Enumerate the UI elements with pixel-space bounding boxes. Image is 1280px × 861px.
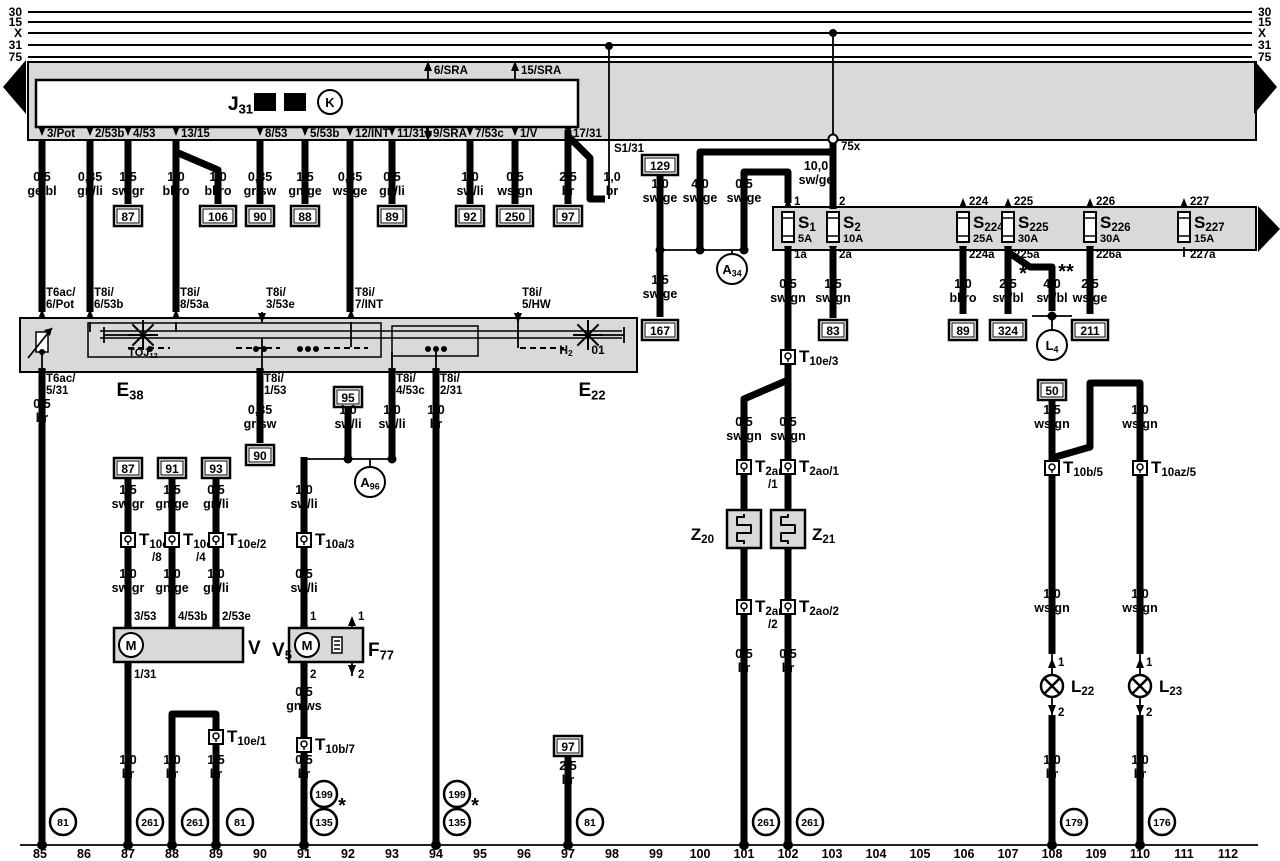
relay-slot-number: 5 <box>262 96 269 110</box>
terminal-arrow-icon <box>348 665 356 675</box>
terminal-label: T8i/5/HW <box>522 287 551 311</box>
ground-ref-number: 261 <box>141 817 159 829</box>
wire-spec-label: 2,5ws/ge <box>1072 277 1108 305</box>
terminal-label: 2 <box>358 669 364 681</box>
junction-dot <box>740 246 749 255</box>
terminal-label: 225a <box>1014 249 1040 261</box>
ground-ref-number: 179 <box>1065 817 1083 829</box>
track-number: 100 <box>690 847 711 861</box>
track-number: 104 <box>866 847 887 861</box>
wire-spec-label: 1,0sw/li <box>378 403 405 431</box>
terminal-label: 15/SRA <box>521 65 561 77</box>
terminal-label: 2 <box>1058 707 1064 719</box>
ground-ref-number: 199 <box>315 789 333 801</box>
terminal-arrow-icon <box>959 198 967 208</box>
track-number: 96 <box>517 847 531 861</box>
track-ref-number: 250 <box>505 210 525 224</box>
fuse-icon <box>957 212 969 242</box>
terminal-label: 13/15 <box>181 128 210 140</box>
wiring-diagram-page: 30301515XX31317575J3156KS15AS210AS22425A… <box>0 0 1280 861</box>
terminal-label: 5/53b <box>310 128 339 140</box>
terminal-label: T8i/4/53c <box>396 373 425 397</box>
ground-ref-number: 135 <box>448 817 466 829</box>
track-number: 107 <box>998 847 1019 861</box>
ground-ref-number: 81 <box>584 817 596 829</box>
fuse-icon <box>1084 212 1096 242</box>
wire-spec-label: 1,5sw/gr <box>112 170 145 198</box>
track-ref-number: 89 <box>956 324 970 338</box>
track-ref-number: 97 <box>561 210 575 224</box>
terminal-arrow-icon <box>1004 198 1012 208</box>
track-ref-number: 91 <box>165 462 179 476</box>
wire-spec-label: 1,0gn/li <box>203 567 229 595</box>
wire-spec-label: 0,5br <box>735 647 752 675</box>
track-number: 97 <box>561 847 575 861</box>
terminal-label: 224 <box>969 196 989 208</box>
continuation-arrow-icon <box>1258 206 1280 252</box>
component-label: Z21 <box>812 525 836 546</box>
terminal-label: 2 <box>1146 707 1152 719</box>
terminal-label: 1a <box>794 249 807 261</box>
wire-spec-label: 2,5br <box>559 759 576 787</box>
track-number: 93 <box>385 847 399 861</box>
track-ref-number: 211 <box>1080 324 1100 338</box>
connector-label: T10e/1 <box>227 727 267 748</box>
terminal-label: 2/53b <box>95 128 124 140</box>
track-number: 111 <box>1174 847 1194 861</box>
junction-dot <box>441 346 447 352</box>
terminal-label: 7/53c <box>475 128 504 140</box>
continuation-arrow-icon <box>1254 60 1277 114</box>
wire-spec-label: 1,0br <box>163 753 180 781</box>
wire-spec-label: 1,0br <box>119 753 136 781</box>
junction-dot <box>388 455 397 464</box>
terminal-label: 75x <box>841 141 861 153</box>
wire-spec-label: 1,5sw/gr <box>112 483 145 511</box>
terminal-label: 12/INT <box>355 128 390 140</box>
track-ref-number: 167 <box>650 324 670 338</box>
junction-dot <box>605 42 613 50</box>
relay-j31-box <box>36 80 578 127</box>
wire-spec-label: 0,5br <box>295 753 312 781</box>
terminal-arrow-icon <box>1086 198 1094 208</box>
wire-spec-label: 0,35gn/li <box>77 170 103 198</box>
relay-slot-number: 6 <box>292 96 299 110</box>
connector-label: T10az/5 <box>1151 458 1197 479</box>
junction-dot <box>829 29 837 37</box>
component-label: E38 <box>116 380 143 402</box>
terminal-label: 226a <box>1096 249 1122 261</box>
fuse-icon <box>1178 212 1190 242</box>
track-ref-number: 90 <box>253 449 267 463</box>
terminal-arrow-icon <box>1136 705 1144 715</box>
track-number: 108 <box>1042 847 1063 861</box>
track-ref-number: 89 <box>385 210 399 224</box>
track-number: 105 <box>910 847 931 861</box>
connector-label: T2ao/1 <box>799 457 839 478</box>
wire-spec-label: 0,5gn/li <box>203 483 229 511</box>
track-ref-number: 106 <box>208 210 228 224</box>
track-ref-number: 324 <box>998 324 1018 338</box>
wire-spec-label: 1,0sw/li <box>290 483 317 511</box>
component-label: Z20 <box>691 525 714 546</box>
wiring-diagram-canvas: 30301515XX31317575J3156KS15AS210AS22425A… <box>0 0 1280 861</box>
junction-dot <box>297 346 303 352</box>
terminal-label: T8i/1/53 <box>264 373 286 397</box>
component-label: V <box>248 638 261 659</box>
connector-label: T10b/5 <box>1063 458 1103 479</box>
fuse-rating: 25A <box>973 233 993 245</box>
junction-dot <box>344 455 353 464</box>
component-label: F77 <box>368 640 394 662</box>
terminal-label: 1 <box>358 611 365 623</box>
wire-spec-label: 1,0ws/gn <box>1033 587 1069 615</box>
junction-dot <box>433 346 439 352</box>
connector-label: T10a/3 <box>315 530 354 551</box>
ground-ref-number: 261 <box>186 817 204 829</box>
track-number: 92 <box>341 847 355 861</box>
terminal-label: T8i/7/INT <box>355 287 383 311</box>
track-number: 99 <box>649 847 663 861</box>
wire <box>744 380 788 508</box>
wire-spec-label: 1,0bl/ro <box>204 170 231 198</box>
track-number: 106 <box>954 847 975 861</box>
wire-spec-label: 1,0ws/gn <box>1121 403 1157 431</box>
wire-spec-label: 1,0br <box>603 170 620 198</box>
terminal-label: 17/31 <box>573 128 602 140</box>
track-number: 110 <box>1130 847 1150 861</box>
fuse-icon <box>827 212 839 242</box>
ground-ref-number: 199 <box>448 789 466 801</box>
component-label: L22 <box>1071 677 1094 698</box>
wire-spec-label: 0,5sw/ge <box>727 177 762 205</box>
track-number: 103 <box>822 847 843 861</box>
terminal-label: 1 <box>794 196 801 208</box>
terminal-label: 1 <box>1146 657 1153 669</box>
wire-spec-label: 0,5gn/ws <box>286 685 321 713</box>
wire-spec-label: 0,5sw/gn <box>770 277 805 305</box>
terminal-label: 225 <box>1014 196 1034 208</box>
wire-spec-label: 1,0bl/ro <box>949 277 976 305</box>
terminal-label: T6ac/5/31 <box>46 373 76 397</box>
wire-spec-label: 0,5sw/gn <box>726 415 761 443</box>
terminal-label: S1/31 <box>614 143 645 155</box>
wire-spec-label: 0,5sw/gn <box>770 415 805 443</box>
terminal-arrow-icon <box>1048 658 1056 668</box>
wire-spec-label: 0,35ws/ge <box>332 170 368 198</box>
wire-spec-label: 1,0gn/ge <box>155 567 188 595</box>
track-number: 94 <box>429 847 443 861</box>
wire-spec-label: 1,0bl/ro <box>162 170 189 198</box>
track-number: 88 <box>165 847 179 861</box>
wire-spec-label: 1,0sw/gr <box>112 567 145 595</box>
terminal-arrow-icon <box>1136 658 1144 668</box>
terminal-label: 1 <box>1058 657 1065 669</box>
fuse-rating: 10A <box>843 233 863 245</box>
connector-label: T10e/2 <box>227 530 266 551</box>
terminal-arrow-icon <box>348 616 356 626</box>
track-ref-number: 87 <box>121 210 135 224</box>
track-number: 98 <box>605 847 619 861</box>
terminal-label: T8i/8/53a <box>180 287 209 311</box>
terminal-label: 2a <box>839 249 852 261</box>
wire-spec-label: 1,0br <box>1043 753 1060 781</box>
ground-ref-number: 81 <box>234 817 246 829</box>
track-number: 102 <box>778 847 799 861</box>
junction-dot <box>305 346 311 352</box>
continuation-arrow-icon <box>3 60 26 114</box>
wire-spec-label: 1,0sw/li <box>456 170 483 198</box>
junction-dot <box>253 346 259 352</box>
track-number: 101 <box>734 847 755 861</box>
terminal-label: 227a <box>1190 249 1216 261</box>
track-number: 109 <box>1086 847 1107 861</box>
track-ref-number: 93 <box>209 462 223 476</box>
component-label: E22 <box>578 380 605 402</box>
junction-dot <box>261 346 267 352</box>
terminal-label: 2 <box>839 196 845 208</box>
wire-spec-label: 1,0br <box>427 403 444 431</box>
ground-ref-number: 81 <box>57 817 69 829</box>
wire-spec-label: 1,5gn/ge <box>288 170 321 198</box>
terminal-label: 1 <box>310 611 317 623</box>
junction-dot <box>696 246 705 255</box>
wire-spec-label: 0,5sw/li <box>290 567 317 595</box>
wire-spec-label: 0,35gr/sw <box>244 170 277 198</box>
junction-dot <box>656 246 665 255</box>
wire-spec-label: 4,0sw/ge <box>683 177 718 205</box>
terminal-label: 224a <box>969 249 995 261</box>
track-number: 87 <box>121 847 135 861</box>
junction-dot <box>1048 312 1057 321</box>
wire-spec-label: 1,0sw/ge <box>643 177 678 205</box>
terminal-label: 226 <box>1096 196 1115 208</box>
bus-label-right: 75 <box>1258 50 1272 64</box>
footnote-star: * <box>338 795 346 817</box>
terminal-label: 4/53b <box>178 611 207 623</box>
wire-spec-label: 1,0br <box>1131 753 1148 781</box>
wire-spec-label: 10,0sw/ge <box>799 159 834 187</box>
wire-spec-label: 0,5gn/li <box>379 170 405 198</box>
terminal-label: 227 <box>1190 196 1209 208</box>
terminal-label: 4/53 <box>133 128 155 140</box>
terminal-label: 8/53 <box>265 128 287 140</box>
wire-spec-label: 1,0ws/gn <box>1121 587 1157 615</box>
ground-ref-number: 261 <box>801 817 819 829</box>
track-number: 85 <box>33 847 47 861</box>
wire-spec-label: 1,5sw/ge <box>643 273 678 301</box>
junction-dot <box>39 349 45 355</box>
track-ref-number: 90 <box>253 210 267 224</box>
motor-m: M <box>302 638 313 653</box>
clock-symbol-glyph: K <box>325 95 335 110</box>
wire-spec-label: 1,5ws/gn <box>1033 403 1069 431</box>
footnote-star: * <box>1019 263 1027 285</box>
terminal-label: 2 <box>310 669 316 681</box>
motor-m: M <box>126 638 137 653</box>
ground-ref-number: 261 <box>757 817 775 829</box>
fuse-rating: 15A <box>1194 233 1214 245</box>
wire-spec-label: 1,5sw/gn <box>815 277 850 305</box>
terminal-label: T8i/2/31 <box>440 373 463 397</box>
track-number: 86 <box>77 847 91 861</box>
fuse-icon <box>1002 212 1014 242</box>
terminal-label: T8i/6/53b <box>94 287 123 311</box>
terminal-label: 2/53e <box>222 611 251 623</box>
track-ref-number: 87 <box>121 462 135 476</box>
component-label: 01 <box>591 343 605 357</box>
fuse-rating: 30A <box>1018 233 1038 245</box>
junction-dot <box>425 346 431 352</box>
terminal-label: 1/31 <box>134 669 157 681</box>
wire-spec-label: 2,5br <box>559 170 576 198</box>
terminal-label: T8i/3/53e <box>266 287 295 311</box>
track-ref-number: 83 <box>826 324 840 338</box>
connector-label: T2ao/2 <box>799 597 839 618</box>
footnote-star: ** <box>1058 261 1074 283</box>
terminal-label: 6/SRA <box>434 65 468 77</box>
track-ref-number: 97 <box>561 740 575 754</box>
track-number: 91 <box>297 847 311 861</box>
ground-ref-number: 135 <box>315 817 333 829</box>
track-ref-number: 129 <box>650 159 670 173</box>
ground-ref-number: 176 <box>1153 817 1171 829</box>
terminal-label: 9/SRA <box>433 128 467 140</box>
terminal-arrow-icon <box>1180 198 1188 208</box>
terminal-label: 3/53 <box>134 611 156 623</box>
wire-spec-label: 0,35gr/sw <box>244 403 277 431</box>
wire-spec-label: 1,5gn/ge <box>155 483 188 511</box>
wire-spec-label: 1,5br <box>207 753 224 781</box>
terminal-arrow-icon <box>1048 705 1056 715</box>
terminal-label: 3/Pot <box>47 128 75 140</box>
component-label: L23 <box>1159 677 1182 698</box>
footnote-star: * <box>471 795 479 817</box>
track-number: 90 <box>253 847 267 861</box>
junction-dot <box>313 346 319 352</box>
track-ref-number: 92 <box>463 210 477 224</box>
wire-spec-label: 0,5ws/gn <box>496 170 532 198</box>
track-number: 112 <box>1218 847 1238 861</box>
terminal-label: 11/31b <box>397 128 432 140</box>
fuse-rating: 30A <box>1100 233 1120 245</box>
terminal-label: 1/V <box>520 128 538 140</box>
terminal-label: T6ac/6/Pot <box>46 287 76 311</box>
fuse-icon <box>782 212 794 242</box>
track-ref-number: 88 <box>298 210 312 224</box>
track-number: 89 <box>209 847 223 861</box>
bus-label-left: 75 <box>9 50 23 64</box>
track-number: 95 <box>473 847 487 861</box>
open-junction-dot <box>829 135 838 144</box>
wire-spec-label: 0,5br <box>779 647 796 675</box>
connector-label: T10e/3 <box>799 347 838 368</box>
wire-spec-label: 0,5ge/bl <box>27 170 56 198</box>
fuse-rating: 5A <box>798 233 812 245</box>
track-ref-number: 50 <box>1045 384 1059 398</box>
wire-spec-label: 0,5br <box>33 397 50 425</box>
connector-label: T10b/7 <box>315 735 355 756</box>
